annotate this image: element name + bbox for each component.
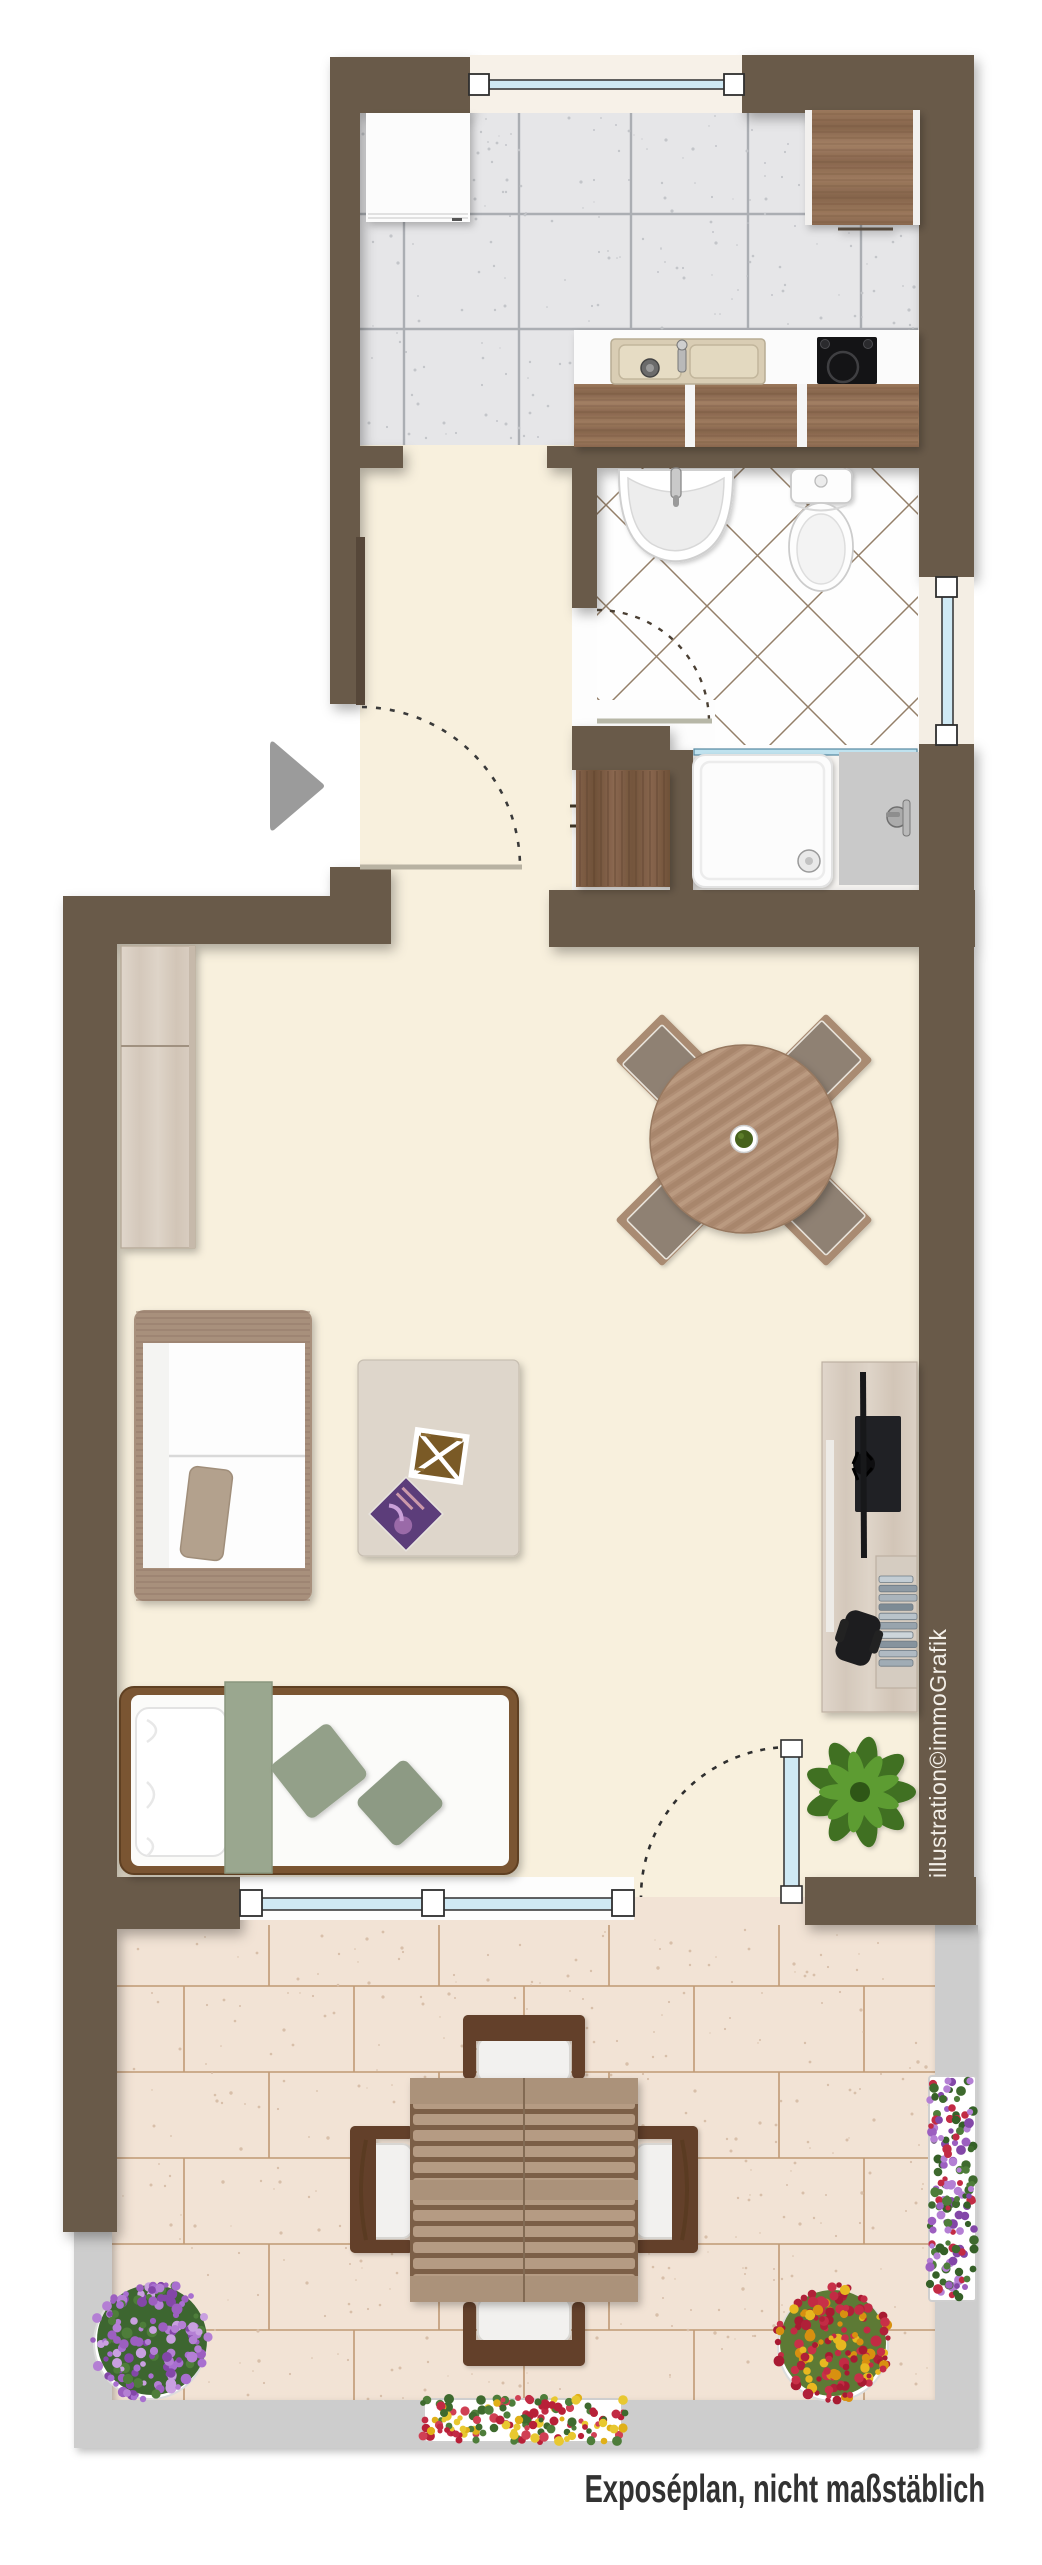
svg-text:illustration©immoGrafik: illustration©immoGrafik xyxy=(925,1628,951,1878)
svg-text:Exposéplan, nicht maßstäblich: Exposéplan, nicht maßstäblich xyxy=(585,2468,985,2511)
